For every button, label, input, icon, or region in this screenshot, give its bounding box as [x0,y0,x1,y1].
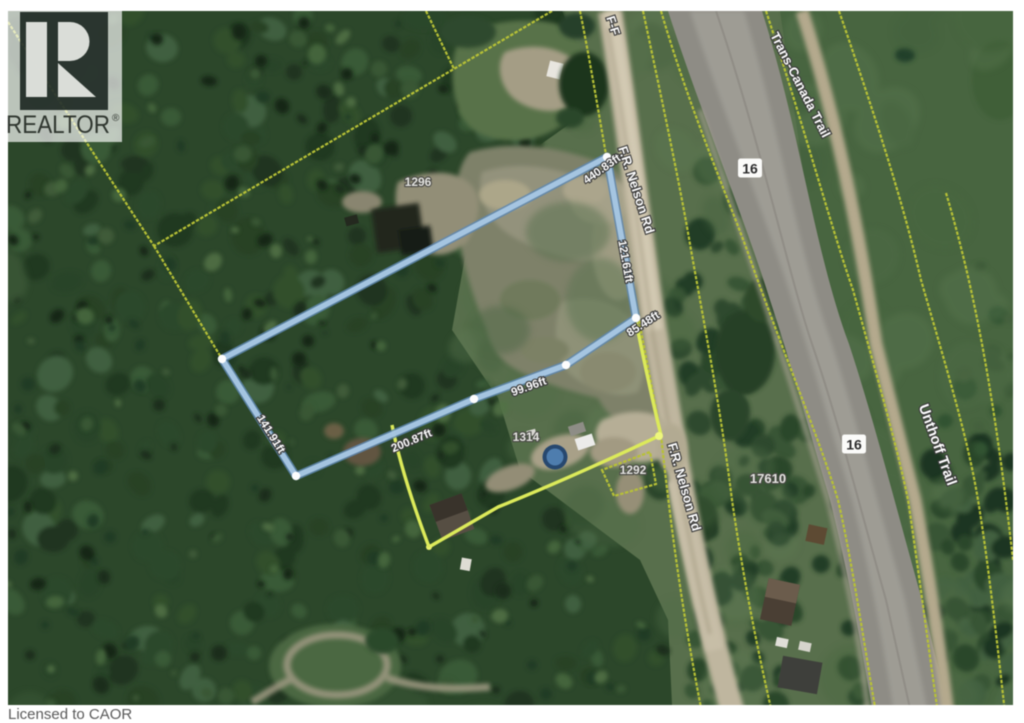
svg-text:1292: 1292 [620,463,647,477]
svg-text:1296: 1296 [405,175,432,189]
svg-text:16: 16 [742,161,758,177]
svg-text:Licensed to CAOR: Licensed to CAOR [8,706,132,723]
svg-text:REALTOR: REALTOR [6,111,110,139]
svg-text:17610: 17610 [750,471,786,486]
svg-text:®: ® [112,113,120,124]
svg-text:16: 16 [846,437,862,453]
svg-text:1314: 1314 [513,430,540,444]
